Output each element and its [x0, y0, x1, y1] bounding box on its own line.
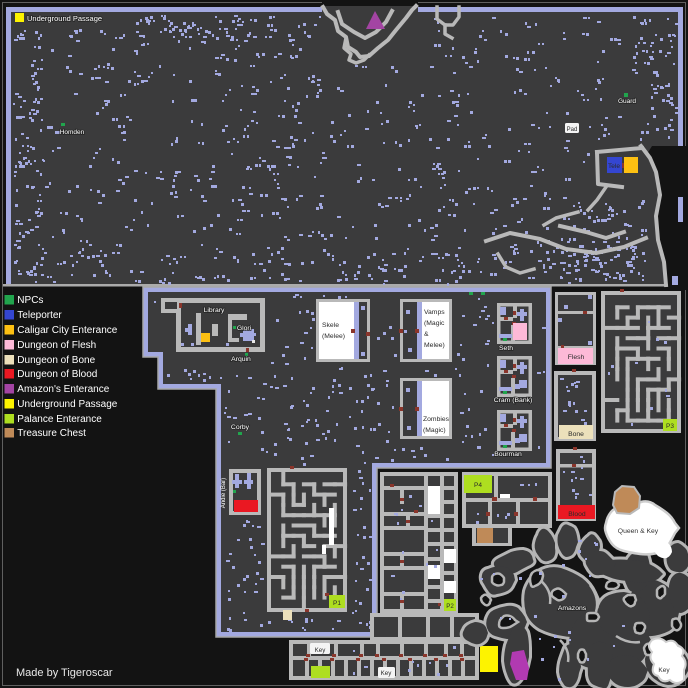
svg-text:Palance Enterance: Palance Enterance [17, 414, 102, 425]
svg-text:Underground Passage: Underground Passage [17, 399, 118, 410]
svg-text:Dungeon of Blood: Dungeon of Blood [17, 369, 97, 380]
svg-text:Library: Library [204, 307, 225, 314]
svg-text:Bourman: Bourman [494, 451, 522, 458]
svg-text:(Magic): (Magic) [423, 427, 446, 434]
svg-text:Made by Tigeroscar: Made by Tigeroscar [16, 667, 113, 679]
svg-text:Amazon's Enterance: Amazon's Enterance [17, 384, 109, 395]
svg-text:Andie (Bar): Andie (Bar) [221, 478, 227, 508]
svg-text:P1: P1 [333, 600, 341, 607]
svg-text:Flesh: Flesh [568, 354, 585, 361]
svg-text:Corby: Corby [231, 424, 250, 431]
svg-text:P3: P3 [666, 423, 674, 430]
svg-text:Amazons: Amazons [558, 605, 587, 612]
svg-text:Caligar City Enterance: Caligar City Enterance [17, 325, 117, 336]
svg-text:Guard: Guard [618, 98, 636, 105]
svg-text:Arquin: Arquin [231, 356, 251, 363]
svg-text:Seth: Seth [499, 345, 513, 352]
svg-text:Skele: Skele [322, 322, 339, 329]
svg-text:Cram (Bank): Cram (Bank) [494, 397, 533, 404]
svg-text:P2: P2 [446, 603, 454, 610]
svg-text:Zombies: Zombies [423, 416, 450, 423]
svg-text:Bone: Bone [568, 431, 584, 438]
svg-text:Underground Passage: Underground Passage [27, 14, 102, 23]
svg-text:Teleporter: Teleporter [17, 310, 62, 321]
svg-text:Dungeon of Flesh: Dungeon of Flesh [17, 340, 96, 351]
svg-text:Dungeon of Bone: Dungeon of Bone [17, 355, 95, 366]
svg-text:(Melee): (Melee) [322, 333, 345, 340]
svg-text:Blood: Blood [568, 511, 586, 518]
svg-text:(Magic: (Magic [424, 320, 445, 327]
svg-text:Key: Key [658, 667, 670, 674]
svg-text:NPCs: NPCs [17, 295, 43, 306]
svg-text:Homden: Homden [60, 129, 85, 136]
svg-text:Pad: Pad [567, 127, 578, 133]
svg-text:Treasure Chest: Treasure Chest [17, 428, 86, 439]
svg-text:Vamps: Vamps [424, 309, 445, 316]
svg-text:P4: P4 [474, 482, 482, 489]
svg-text:Glori: Glori [237, 325, 252, 332]
svg-text:Queen & Key: Queen & Key [618, 528, 659, 535]
svg-text:Key: Key [315, 647, 327, 654]
svg-text:Key: Key [381, 670, 393, 677]
svg-text:&: & [424, 331, 429, 338]
svg-text:Melee): Melee) [424, 342, 445, 349]
svg-text:Tele: Tele [608, 163, 620, 170]
